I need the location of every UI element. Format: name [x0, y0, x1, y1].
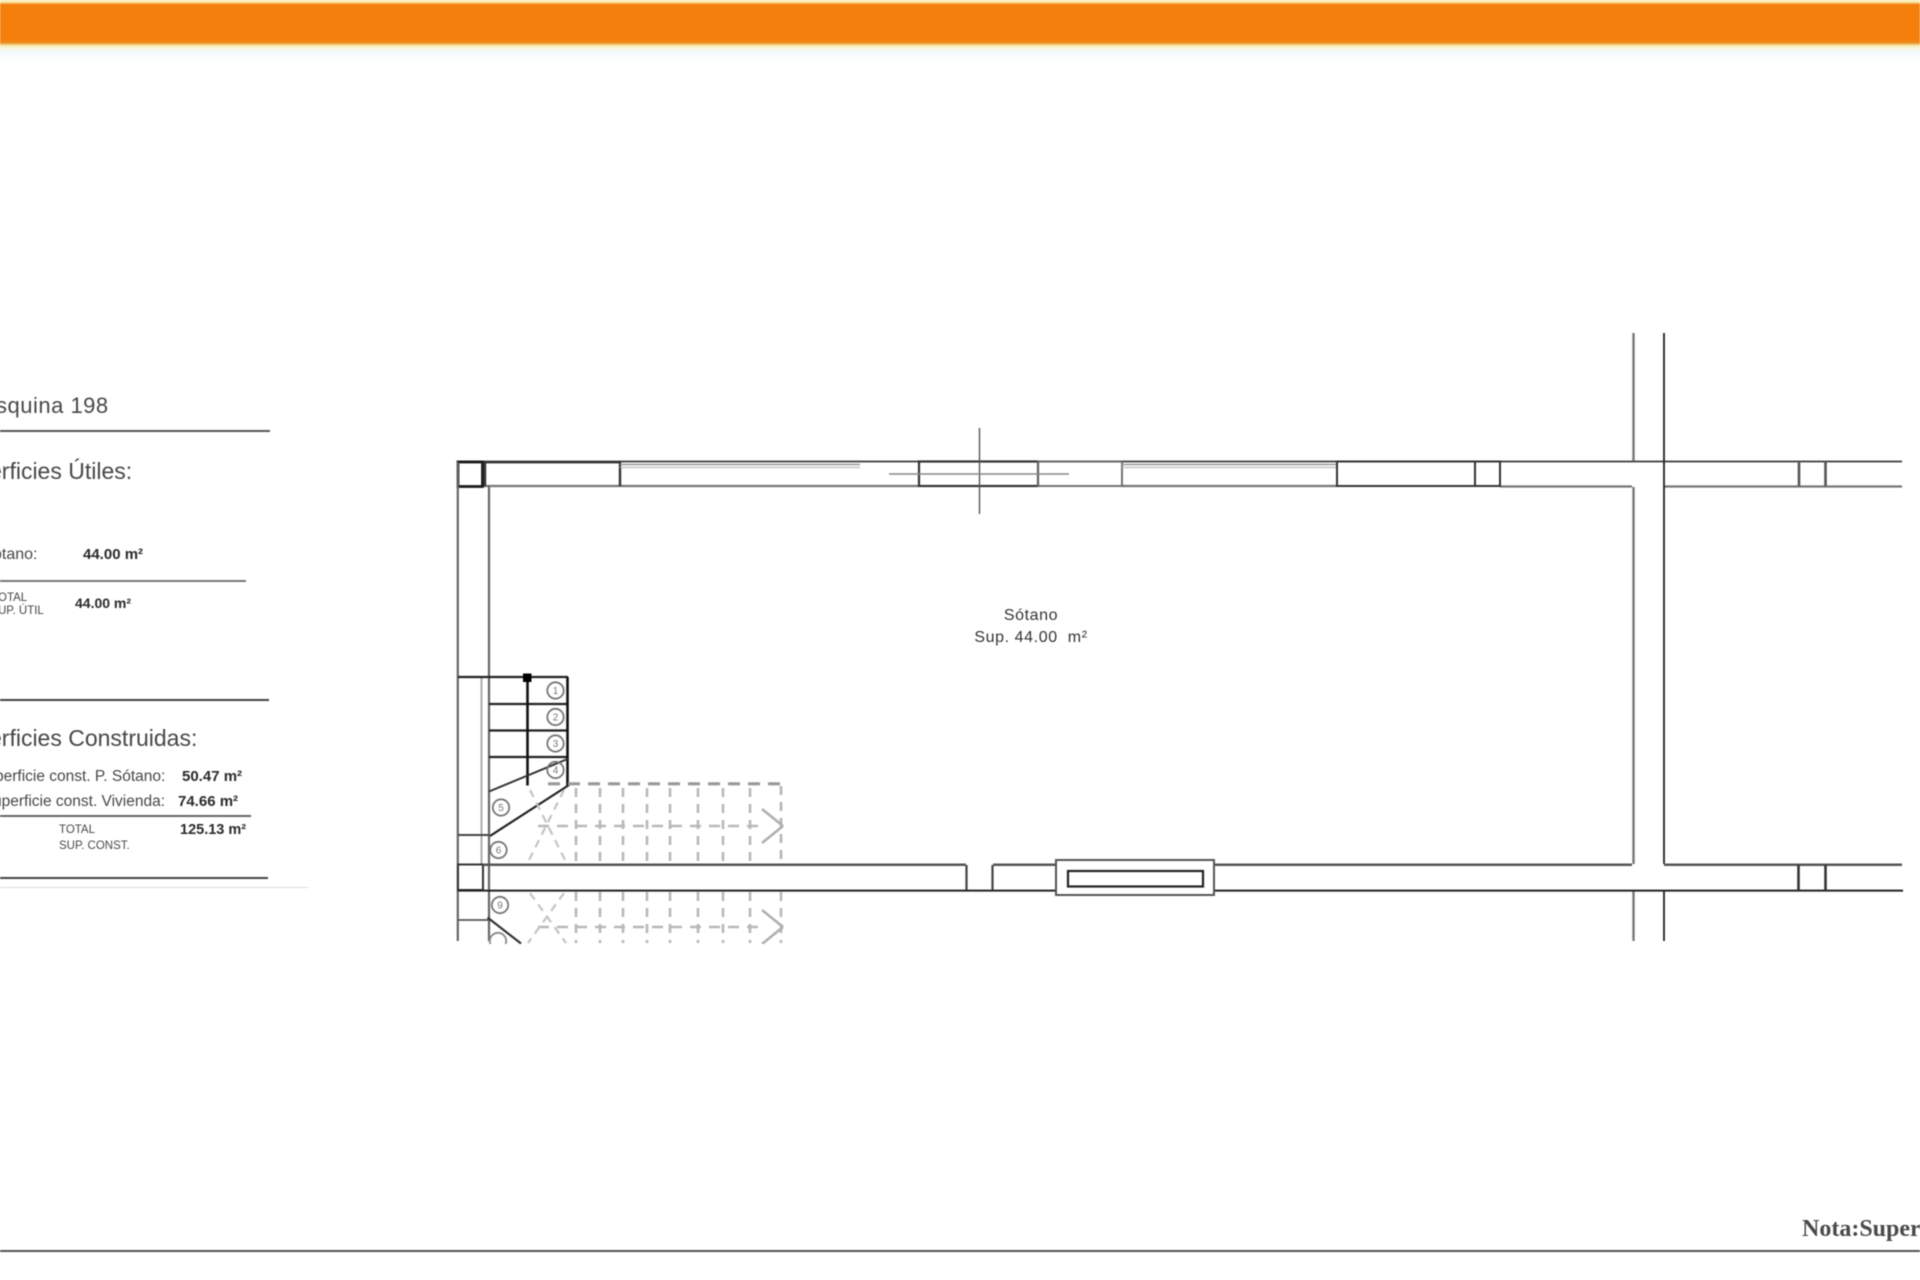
svg-text:1: 1 — [553, 686, 559, 697]
svg-text:Sótano: Sótano — [1004, 607, 1058, 624]
svg-text:5: 5 — [498, 803, 504, 814]
svg-text:2: 2 — [553, 713, 559, 724]
svg-text:6: 6 — [496, 846, 502, 857]
svg-text:Sup. 44.00 m²: Sup. 44.00 m² — [974, 629, 1087, 646]
svg-text:4: 4 — [553, 766, 559, 777]
svg-text:9: 9 — [497, 901, 503, 912]
svg-text:3: 3 — [553, 739, 559, 750]
